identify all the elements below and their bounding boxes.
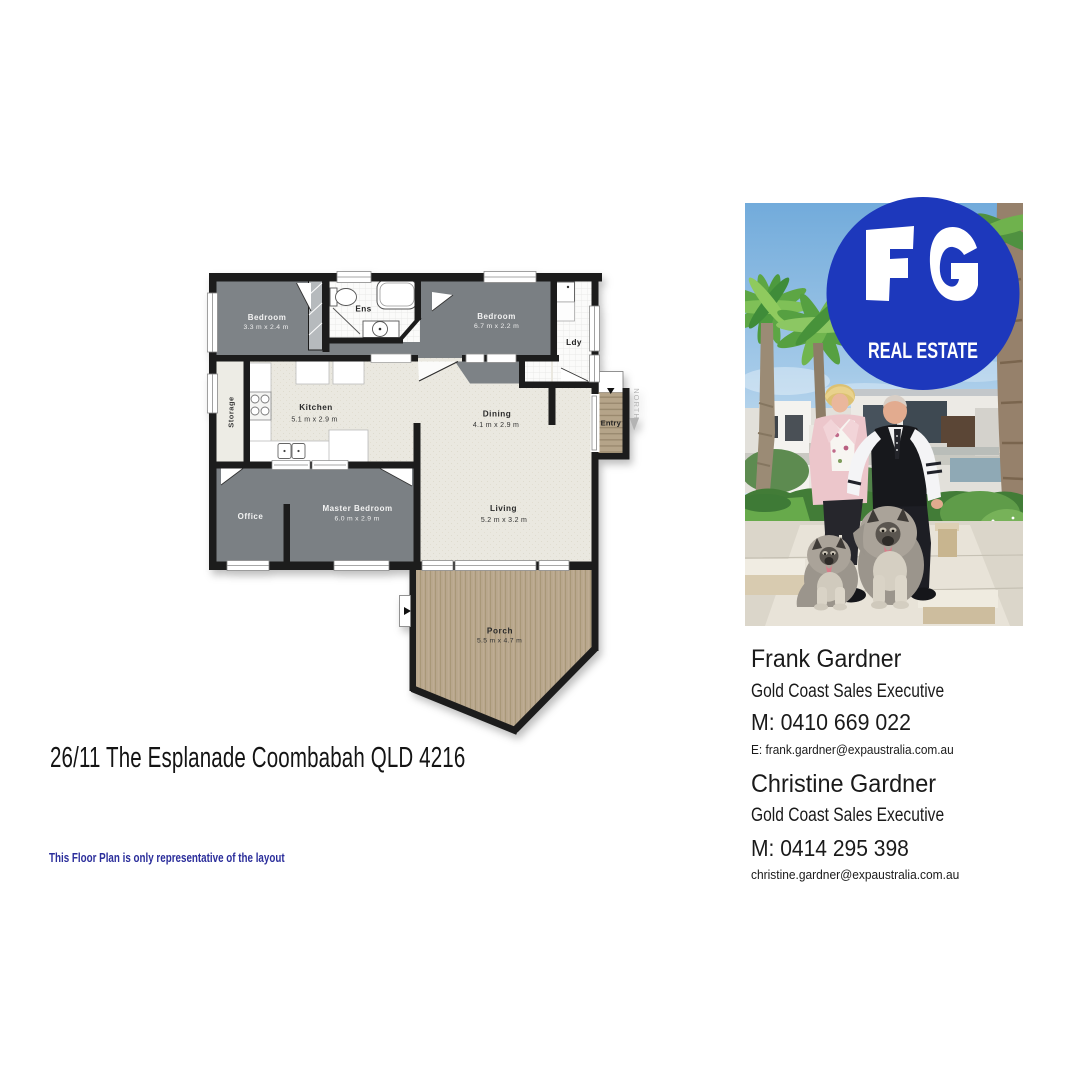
svg-text:Bedroom: Bedroom: [477, 312, 516, 321]
svg-text:3.3 m x 2.4 m: 3.3 m x 2.4 m: [243, 324, 288, 331]
svg-text:6.7 m x 2.2 m: 6.7 m x 2.2 m: [474, 323, 519, 330]
svg-text:6.0 m x 2.9 m: 6.0 m x 2.9 m: [334, 516, 379, 523]
svg-text:Kitchen: Kitchen: [299, 403, 333, 412]
svg-text:4.1 m x 2.9 m: 4.1 m x 2.9 m: [473, 422, 519, 429]
svg-text:NORTH: NORTH: [632, 388, 641, 420]
svg-text:5.2 m x 3.2 m: 5.2 m x 3.2 m: [481, 517, 527, 524]
svg-text:Living: Living: [490, 504, 517, 513]
svg-text:Ens: Ens: [355, 305, 371, 314]
svg-text:Entry: Entry: [601, 419, 622, 428]
svg-text:Master Bedroom: Master Bedroom: [322, 504, 392, 513]
svg-text:Ldy: Ldy: [566, 338, 582, 347]
svg-text:Porch: Porch: [487, 627, 513, 636]
svg-text:Bedroom: Bedroom: [248, 313, 287, 322]
svg-text:5.5 m x 4.7 m: 5.5 m x 4.7 m: [477, 638, 522, 645]
svg-text:REAL ESTATE: REAL ESTATE: [868, 338, 978, 363]
svg-text:5.1 m x 2.9 m: 5.1 m x 2.9 m: [291, 417, 337, 424]
svg-text:Storage: Storage: [227, 396, 236, 427]
svg-text:Dining: Dining: [483, 410, 511, 419]
svg-text:Office: Office: [238, 512, 264, 521]
